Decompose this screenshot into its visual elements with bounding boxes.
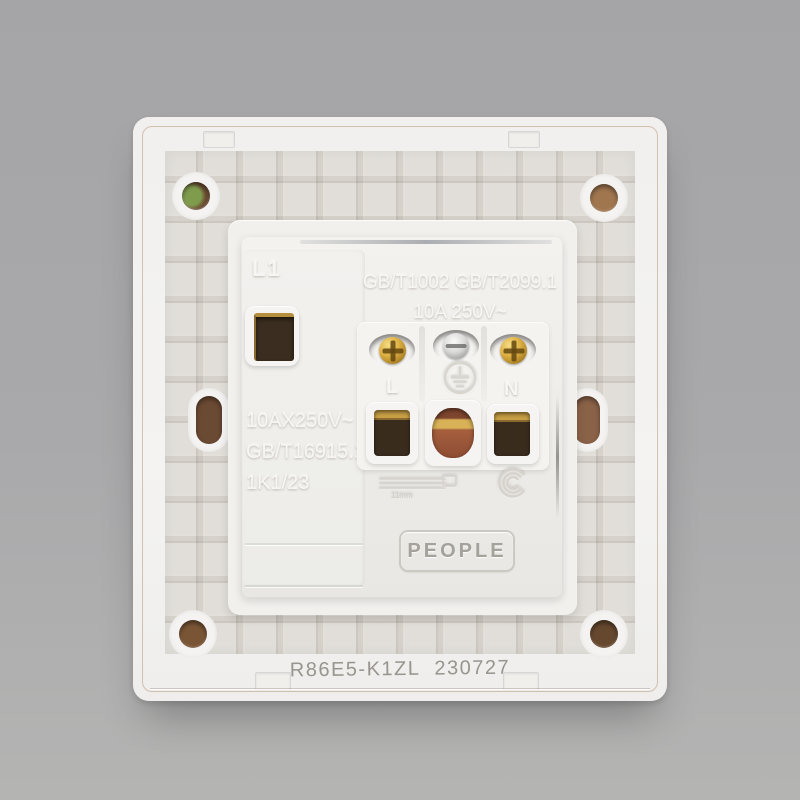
- terminal-gap-right: [481, 326, 487, 402]
- mounting-hole-top-right: [590, 184, 618, 212]
- mounting-hole-bottom-right: [590, 620, 618, 648]
- terminal-neutral-label: N: [504, 378, 518, 401]
- product-photo-stage: L1 10AX250V~ GB/T16915.1 1K1/23 GB/T1002…: [0, 0, 800, 800]
- socket-standards: GB/T1002 GB/T2099.1: [360, 268, 560, 298]
- strip-gauge-icon: 11mm: [377, 474, 473, 500]
- terminal-live-label: L: [386, 376, 398, 399]
- live-terminal-screw: [379, 337, 406, 364]
- mounting-hole-bottom-left: [179, 620, 207, 648]
- mounting-hole-top-left: [182, 182, 210, 210]
- neutral-terminal-screw: [500, 337, 527, 364]
- live-wire-opening: [374, 410, 410, 456]
- terminal-gap-left: [419, 326, 425, 402]
- model-code: R86E5-K1ZL: [290, 658, 421, 682]
- module-top-seam: [300, 240, 552, 244]
- switch-body-seam-upper: [245, 543, 363, 545]
- model-date-line: R86E5-K1ZL230727: [250, 656, 550, 683]
- date-code: 230727: [434, 657, 510, 680]
- module-side-seam: [556, 396, 559, 518]
- ccc-certification-icon: [492, 466, 534, 500]
- brand-label: PEOPLE: [407, 540, 506, 563]
- switch-channel-label: L1: [252, 256, 282, 282]
- earth-terminal-icon: [442, 360, 478, 396]
- socket-ratings-text: GB/T1002 GB/T2099.1 10A 250V~: [360, 268, 560, 328]
- switch-batch-code: 1K1/23: [246, 468, 376, 499]
- switch-wire-terminal: [254, 313, 294, 361]
- earth-wire-opening: [432, 408, 474, 458]
- top-clip-notch-right: [508, 131, 540, 148]
- strip-gauge-label: 11mm: [391, 491, 413, 500]
- neutral-wire-opening: [494, 412, 530, 456]
- bottom-seam-line: [150, 688, 650, 689]
- brand-badge: PEOPLE: [399, 530, 515, 572]
- mounting-slot-left: [196, 396, 222, 444]
- switch-body-seam-lower: [245, 585, 363, 587]
- mounting-slot-right: [574, 396, 600, 444]
- top-clip-notch-left: [203, 131, 235, 148]
- earth-terminal-screw: [443, 333, 469, 359]
